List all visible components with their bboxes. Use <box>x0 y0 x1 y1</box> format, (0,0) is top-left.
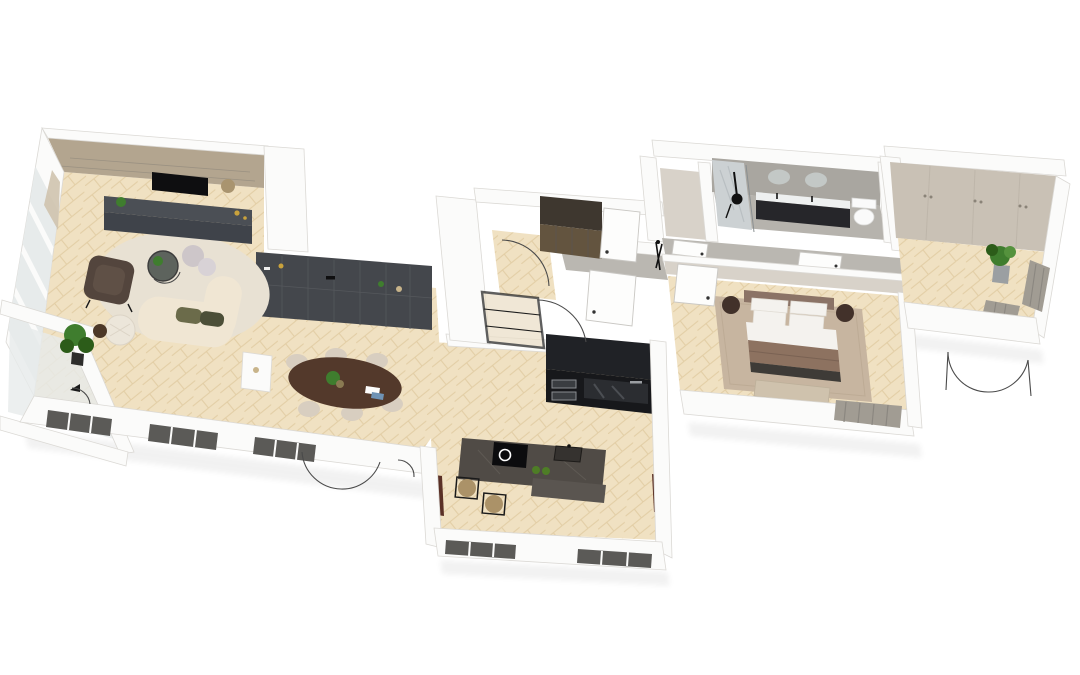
wardrobe-handle <box>924 195 927 198</box>
faucet <box>567 444 571 448</box>
kitchen-tall-cabinet <box>546 334 654 414</box>
entry-hall <box>436 188 668 348</box>
built-in-wardrobe <box>890 162 1056 252</box>
door-swing-arc <box>988 360 1028 392</box>
wall-column <box>264 146 308 252</box>
shower-head <box>732 194 743 205</box>
entry-wardrobe <box>540 196 602 259</box>
round-mirror <box>768 170 790 185</box>
apple <box>542 467 550 475</box>
door-handle <box>592 310 595 313</box>
bedroom <box>662 254 922 436</box>
table-plant <box>153 256 163 266</box>
shelf-decor <box>264 267 270 270</box>
dining-chair <box>298 401 320 417</box>
wardrobe-handle <box>980 201 983 204</box>
door-leaf <box>600 208 640 262</box>
door-leaf <box>586 270 636 326</box>
round-mirror <box>805 173 827 188</box>
pillow <box>790 301 827 316</box>
second-room <box>880 146 1070 344</box>
wardrobe-handle <box>974 200 977 203</box>
shelf-decor <box>253 367 259 373</box>
island-sink <box>554 446 582 462</box>
shelf-decor <box>326 276 335 280</box>
render-canvas <box>0 0 1080 675</box>
nightstand <box>836 304 854 322</box>
knit-pouf <box>105 315 135 345</box>
kitchen <box>420 334 672 570</box>
door-handle <box>706 296 709 299</box>
door-leaf <box>674 264 718 306</box>
apple <box>532 466 540 474</box>
wardrobe-handle <box>1019 205 1022 208</box>
shelf-decor <box>279 264 284 269</box>
wall-basket <box>221 179 235 193</box>
floor-plan-3d-render <box>0 0 1080 675</box>
door-handle <box>835 265 838 268</box>
console-plant <box>116 197 126 207</box>
door-swing-arc <box>948 352 988 392</box>
shelf-plant <box>378 281 384 287</box>
side-stool <box>93 324 107 338</box>
table-vase <box>336 380 344 388</box>
entry-left-wall <box>436 196 490 344</box>
nightstand <box>722 296 740 314</box>
wardrobe-handle <box>930 196 933 199</box>
glass-partition <box>482 292 544 348</box>
dining-table-set <box>285 348 404 421</box>
cabinet-label <box>630 381 642 384</box>
console-decor <box>234 210 239 215</box>
pouf <box>198 258 216 276</box>
bathroom <box>640 140 898 244</box>
door-handle <box>701 253 704 256</box>
oven <box>552 380 576 388</box>
console-decor <box>243 216 247 220</box>
shelf-decor <box>396 286 402 292</box>
wardrobe-handle <box>1025 206 1028 209</box>
door-handle <box>605 250 608 253</box>
living-dining-room <box>0 128 444 474</box>
oven <box>552 392 576 400</box>
